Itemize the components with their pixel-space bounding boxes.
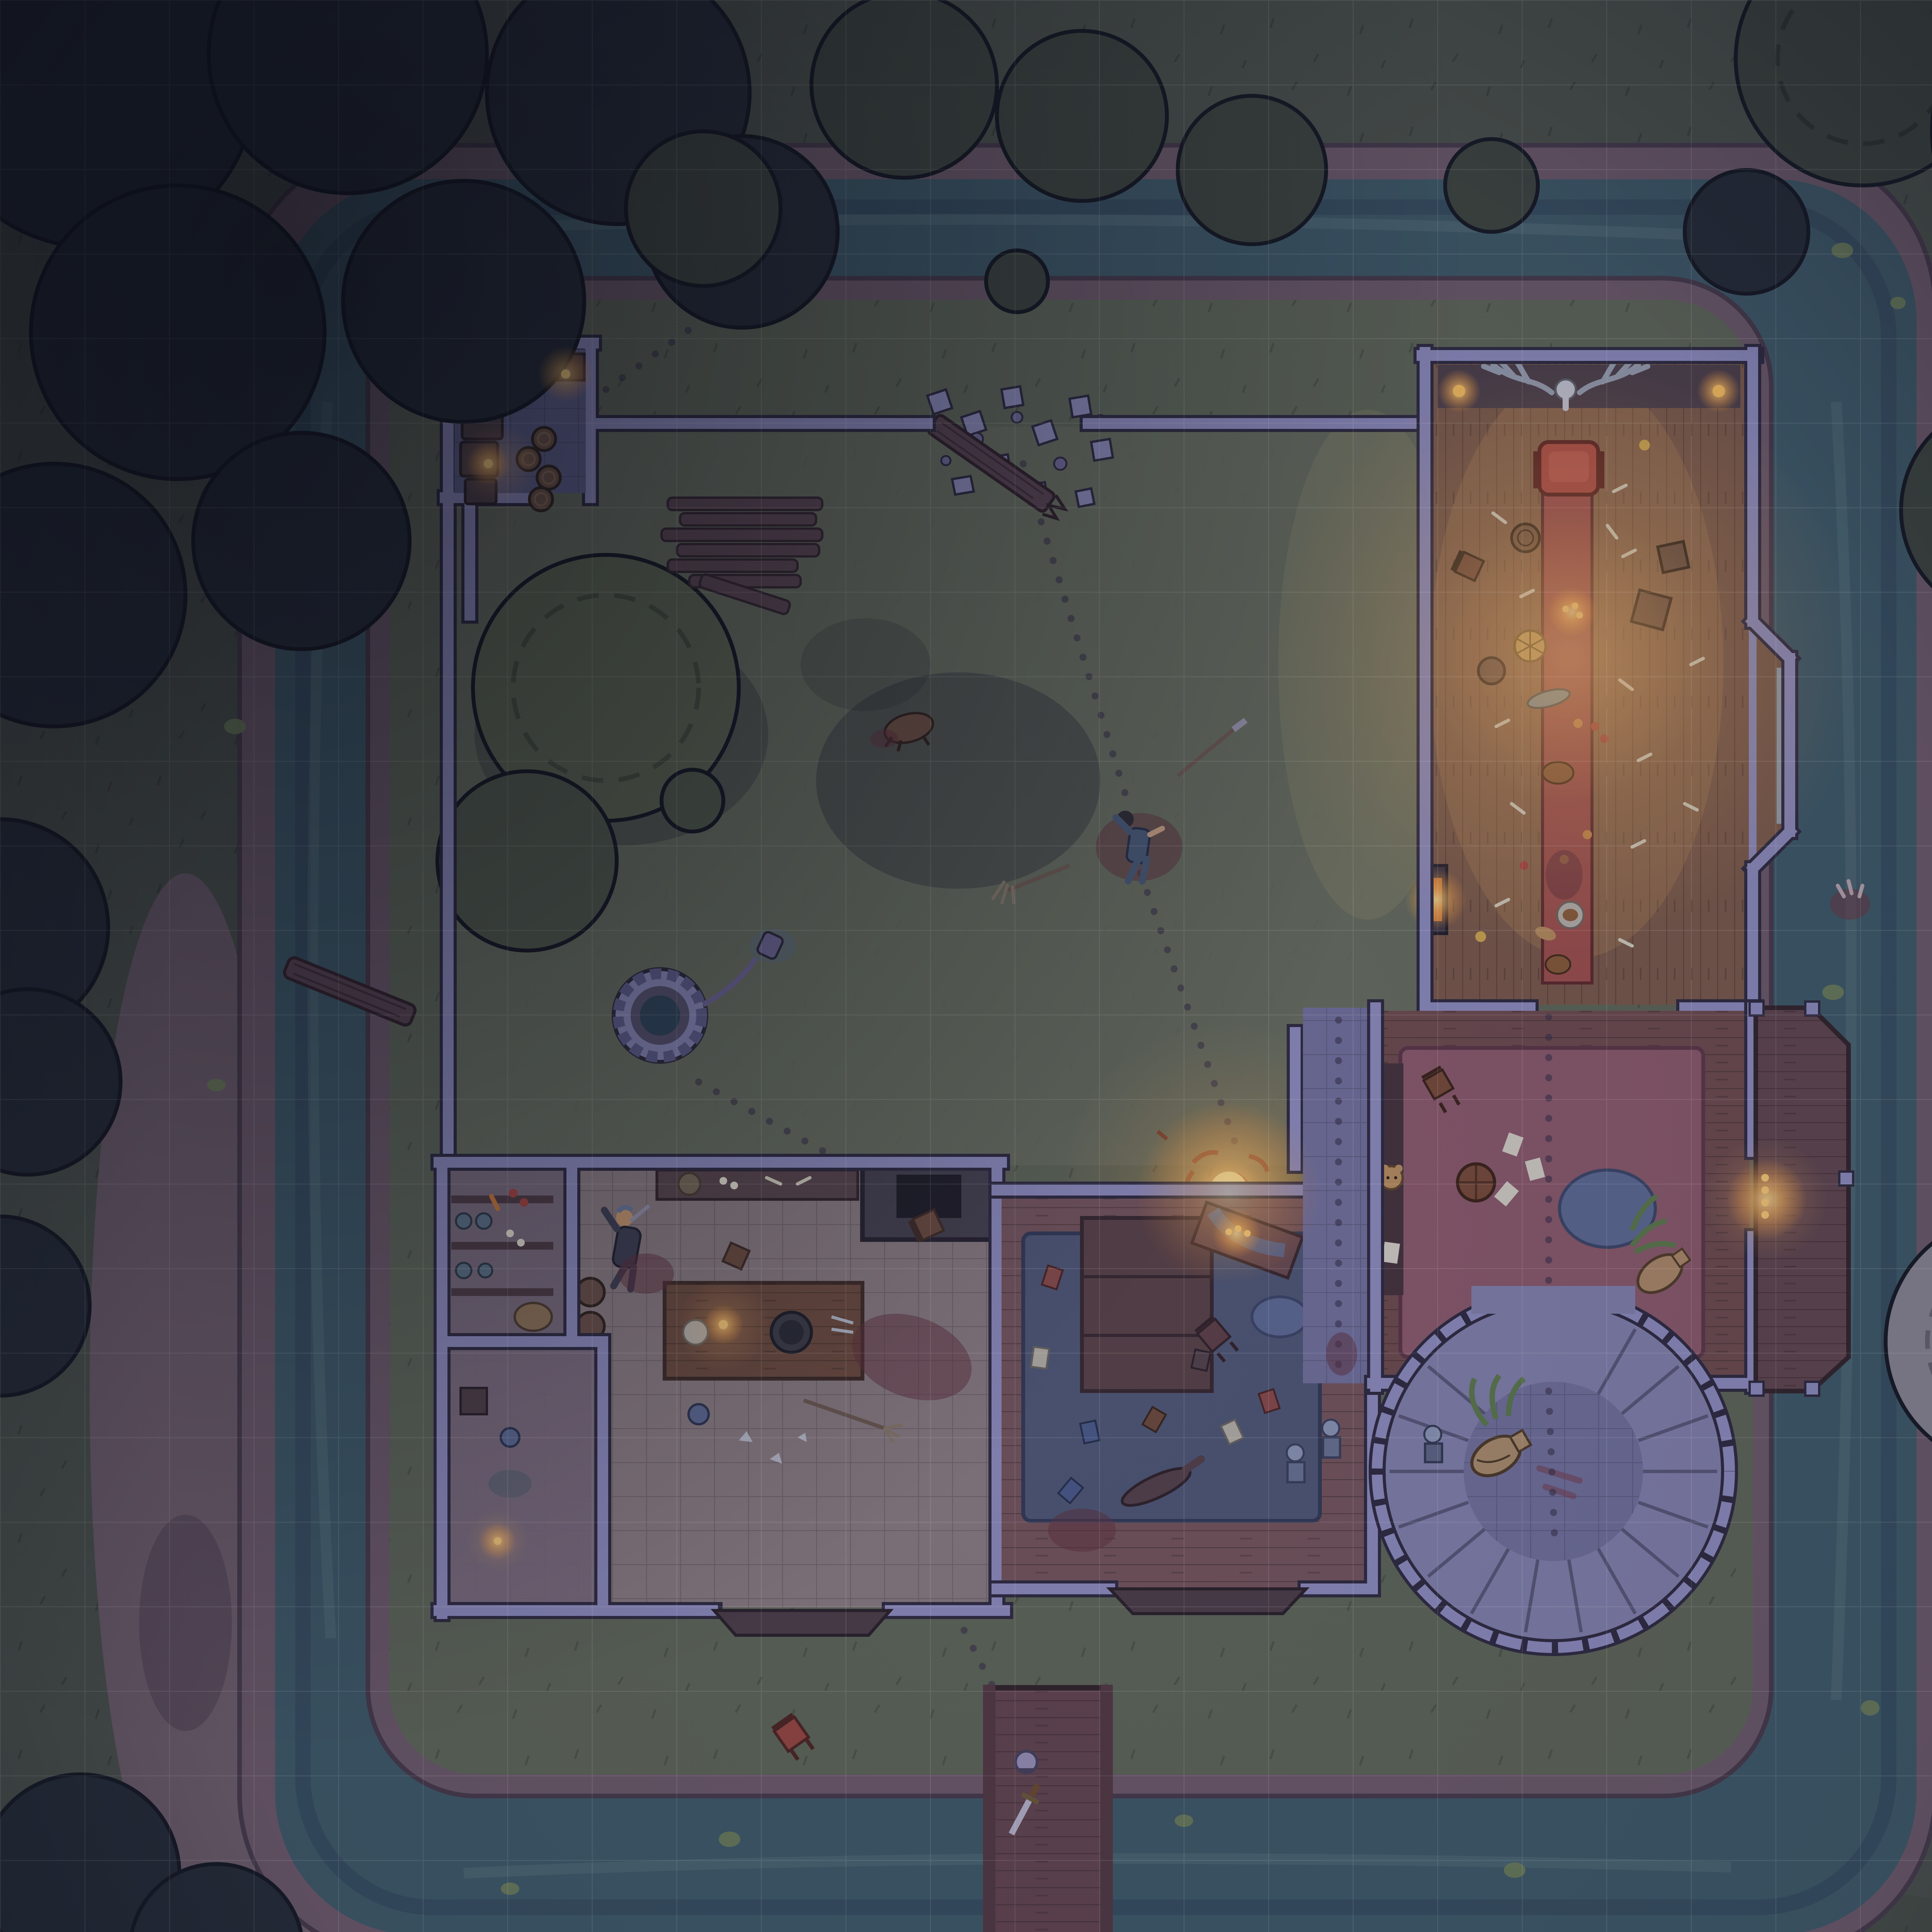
corner-shadow (0, 0, 1932, 1932)
battle-map-canvas[interactable] (0, 0, 1932, 1932)
battle-map-page (0, 0, 1932, 1932)
